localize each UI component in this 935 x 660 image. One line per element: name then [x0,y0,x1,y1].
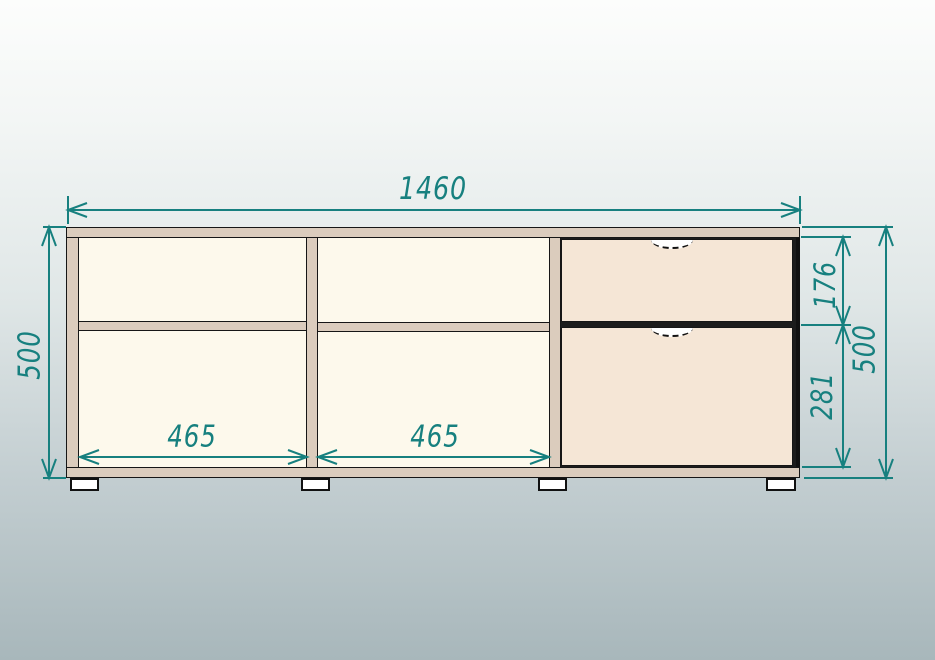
left-bay-shelf [78,321,308,331]
dim-label-overall-width: 1460 [399,171,467,207]
dim-label-bottom-drawer-height: 281 [805,372,839,420]
foot-2 [301,478,330,491]
right-side-panel-edge [796,227,800,478]
foot-1 [70,478,99,491]
bottom-drawer-front [561,327,793,466]
dim-label-right-height: 500 [848,324,883,373]
divider-middle-drawers [549,237,561,468]
dim-label-left-bay-width: 465 [167,420,216,455]
foot-4 [766,478,796,491]
foot-3 [538,478,567,491]
bottom-panel [66,467,800,478]
drawing-canvas: 1460 500 176 281 500 465 465 [0,0,935,660]
middle-bay-shelf [316,322,551,332]
top-drawer-front [561,239,793,322]
dim-label-top-drawer-height: 176 [808,261,842,309]
top-panel [66,227,800,238]
left-side-panel [66,227,79,478]
dim-label-left-height: 500 [13,330,48,379]
dim-label-middle-bay-width: 465 [410,420,459,455]
divider-left-middle [306,237,318,468]
